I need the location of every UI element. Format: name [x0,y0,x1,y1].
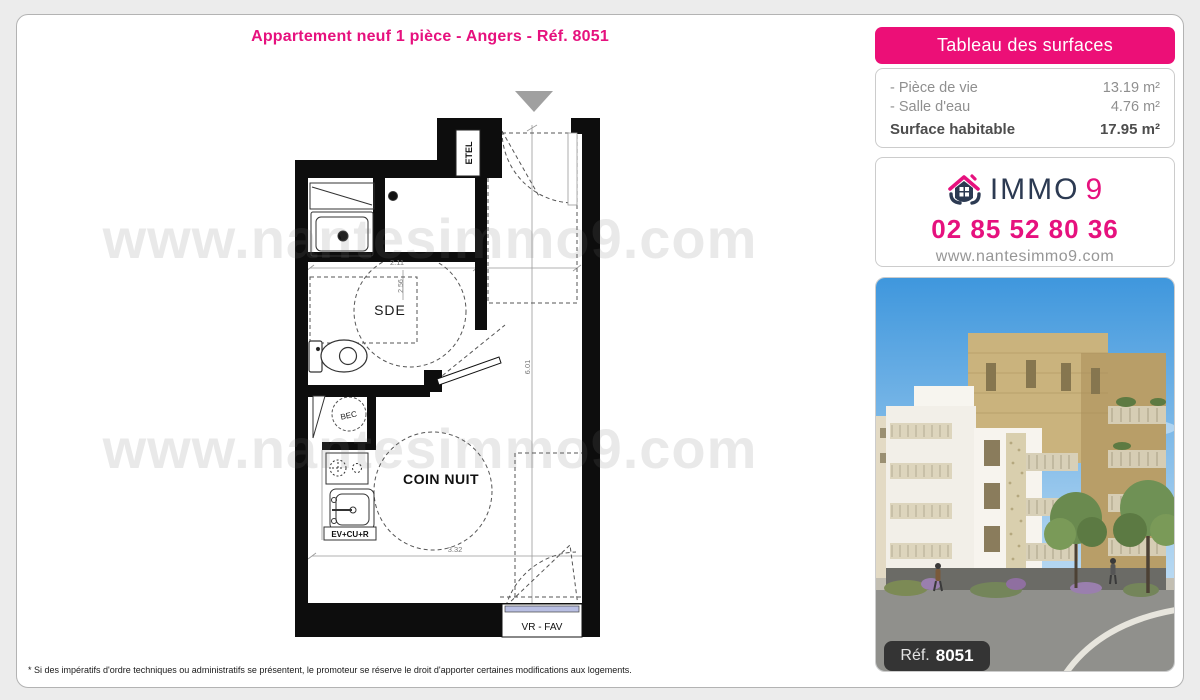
surfaces-table-header: Tableau des surfaces [875,27,1175,64]
agency-phone[interactable]: 02 85 52 80 36 [876,214,1174,245]
dim-room-height: 6.01 [523,360,532,375]
agency-website-link[interactable]: www.nantesimmo9.com [876,248,1174,266]
window-label: VR - FAV [522,622,563,633]
surface-label: - Salle d'eau [890,98,970,117]
total-value: 17.95 m² [1100,119,1160,141]
bec-label: BEC [340,409,358,421]
house-icon [946,172,984,208]
bec-shelf [313,396,325,438]
ref-number: 8051 [936,646,974,666]
entrance-arrow-icon [515,91,553,112]
surface-value: 13.19 m² [1103,79,1160,98]
disclaimer-text: * Si des impératifs d'ordre techniques o… [28,665,632,675]
agency-logo: IMMO9 [876,172,1174,208]
photo-ref-badge: Réf. 8051 [884,641,990,671]
coin-nuit-label: COIN NUIT [403,471,479,487]
page-title: Appartement neuf 1 pièce - Angers - Réf.… [60,28,800,46]
dim-sde-width: 2.11 [390,258,404,267]
brand-immo: IMMO [990,173,1080,207]
surfaces-table: - Pièce de vie 13.19 m² - Salle d'eau 4.… [875,68,1175,148]
sde-door-leaf [437,357,501,385]
agency-card: IMMO9 02 85 52 80 36 www.nantesimmo9.com [875,157,1175,267]
table-row: - Salle d'eau 4.76 m² [890,98,1160,117]
surface-value: 4.76 m² [1111,98,1160,117]
table-total-row: Surface habitable 17.95 m² [890,119,1160,141]
floor-plan-svg: ETEL VR - FAV EV+CU+R [285,80,615,650]
surface-label: - Pièce de vie [890,79,978,98]
ref-label: Réf. [900,647,929,665]
etel-label: ETEL [464,141,474,165]
building-photo [875,277,1175,672]
toilet [309,340,367,372]
table-row: - Pièce de vie 13.19 m² [890,79,1160,98]
sde-label: SDE [374,302,406,318]
bottom-window-glazing [505,606,579,612]
brand-9: 9 [1085,173,1104,207]
building-photo-illustration [876,278,1175,672]
total-label: Surface habitable [890,119,1015,141]
dim-room-width: 3.32 [448,545,463,554]
floor-plan: ETEL VR - FAV EV+CU+R [285,80,615,650]
kitchen-label: EV+CU+R [331,530,369,539]
dim-sde-depth: 2.56 [398,279,405,293]
entry-window [568,133,577,205]
